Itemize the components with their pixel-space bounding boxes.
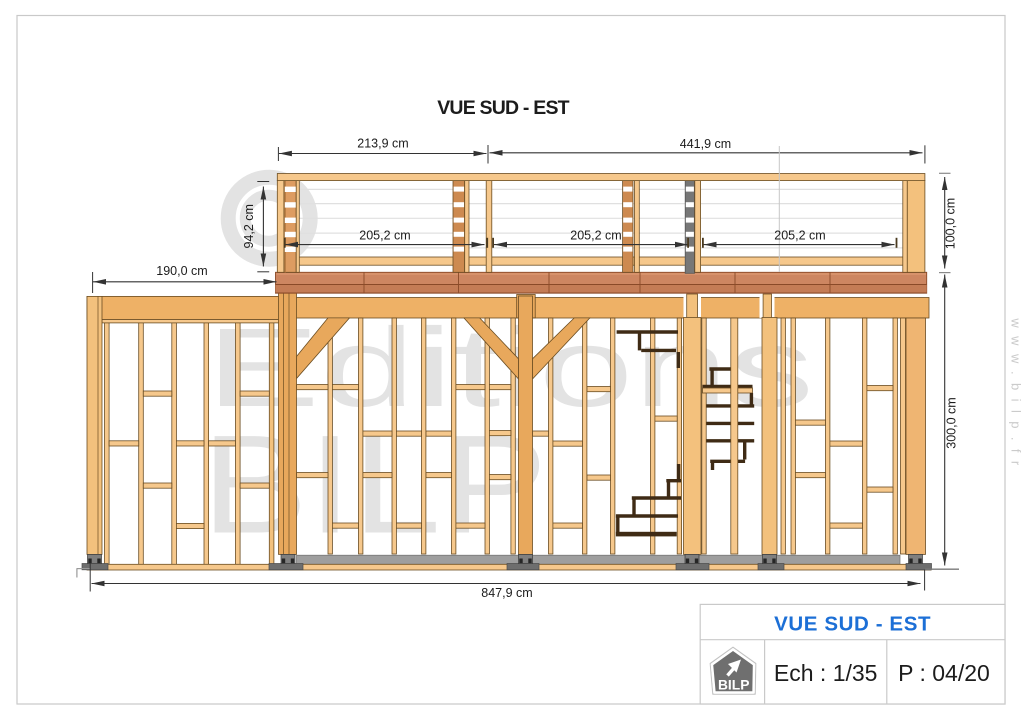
- svg-text:205,2 cm: 205,2 cm: [774, 228, 825, 242]
- svg-text:VUE SUD - EST: VUE SUD - EST: [774, 613, 931, 636]
- svg-text:VUE SUD - EST: VUE SUD - EST: [437, 97, 569, 119]
- svg-text:847,9 cm: 847,9 cm: [481, 586, 532, 600]
- svg-text:94,2 cm: 94,2 cm: [242, 204, 256, 248]
- svg-text:BILP: BILP: [718, 677, 749, 692]
- svg-text:205,2 cm: 205,2 cm: [359, 228, 410, 242]
- svg-text:205,2 cm: 205,2 cm: [570, 228, 621, 242]
- svg-text:Ech : 1/35: Ech : 1/35: [774, 660, 878, 686]
- svg-text:www.bilp.fr: www.bilp.fr: [1009, 317, 1024, 473]
- svg-text:100,0 cm: 100,0 cm: [944, 198, 958, 249]
- svg-text:213,9 cm: 213,9 cm: [357, 137, 408, 151]
- svg-text:300,0 cm: 300,0 cm: [945, 397, 959, 448]
- svg-text:P : 04/20: P : 04/20: [898, 660, 990, 686]
- svg-text:441,9 cm: 441,9 cm: [680, 137, 731, 151]
- svg-text:190,0 cm: 190,0 cm: [156, 264, 207, 278]
